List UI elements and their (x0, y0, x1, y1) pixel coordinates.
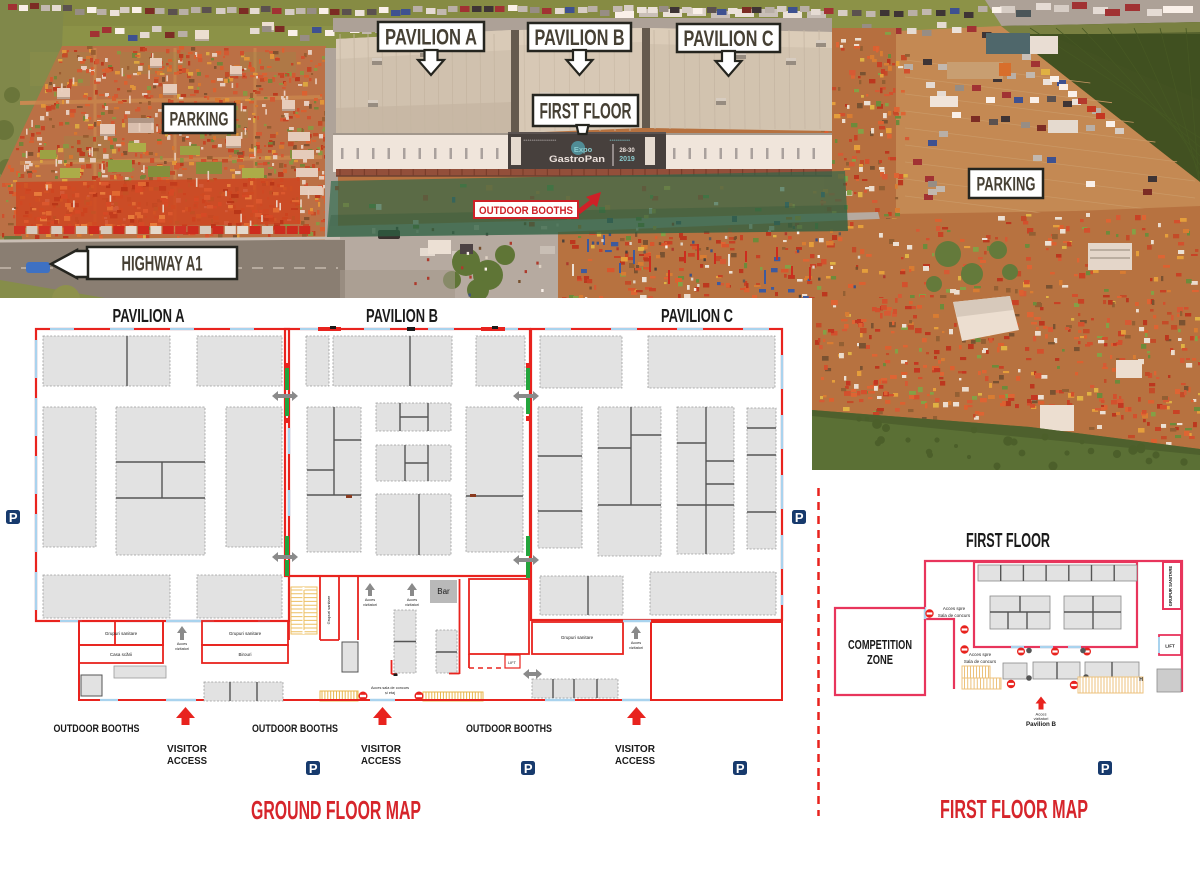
svg-text:LIFT: LIFT (1165, 644, 1175, 649)
svg-text:Pavilion B: Pavilion B (1026, 722, 1057, 728)
svg-text:Casa scării: Casa scării (110, 652, 132, 657)
svg-text:ACCESS: ACCESS (361, 755, 401, 767)
svg-text:P: P (736, 761, 745, 776)
svg-text:Sala de concurs: Sala de concurs (964, 659, 997, 664)
svg-text:Acces: Acces (407, 598, 417, 602)
svg-text:vizitatori: vizitatori (175, 647, 189, 651)
svg-text:Grupuri sanitare: Grupuri sanitare (105, 631, 138, 636)
svg-text:vizitatori: vizitatori (405, 603, 419, 607)
svg-text:PARKING: PARKING (170, 109, 229, 130)
svg-text:GRUPUR SANITARE: GRUPUR SANITARE (1168, 566, 1173, 607)
svg-text:Birouri: Birouri (238, 652, 251, 657)
svg-text:PAVILION A: PAVILION A (385, 24, 477, 49)
svg-text:Acces: Acces (365, 598, 375, 602)
svg-text:Grupuri sanitare: Grupuri sanitare (326, 595, 331, 624)
svg-text:OUTDOOR BOOTHS: OUTDOOR BOOTHS (466, 723, 552, 735)
svg-text:Acces sala de concurs: Acces sala de concurs (371, 686, 409, 690)
svg-text:H: H (1139, 677, 1143, 683)
svg-text:OUTDOOR BOOTHS: OUTDOOR BOOTHS (479, 205, 573, 217)
svg-text:HIGHWAY A1: HIGHWAY A1 (122, 253, 203, 276)
svg-text:OUTDOOR BOOTHS: OUTDOOR BOOTHS (54, 723, 140, 735)
svg-text:P: P (795, 510, 804, 525)
svg-text:vizitatori: vizitatori (363, 603, 377, 607)
svg-text:ACCESS: ACCESS (615, 755, 655, 767)
svg-text:și etaj: și etaj (385, 691, 395, 695)
svg-text:P: P (524, 761, 533, 776)
svg-text:ZONE: ZONE (867, 653, 893, 667)
svg-text:VISITOR: VISITOR (167, 743, 207, 755)
svg-text:vizitatori: vizitatori (629, 646, 643, 650)
svg-text:Acces spre: Acces spre (969, 652, 992, 657)
svg-text:VISITOR: VISITOR (361, 743, 401, 755)
svg-text:PAVILION B: PAVILION B (366, 306, 438, 326)
svg-text:P: P (1101, 761, 1110, 776)
svg-text:Grupuri sanitare: Grupuri sanitare (229, 631, 262, 636)
svg-text:OUTDOOR BOOTHS: OUTDOOR BOOTHS (252, 723, 338, 735)
svg-text:P: P (309, 761, 318, 776)
svg-text:Acces: Acces (177, 642, 187, 646)
svg-text:ACCESS: ACCESS (167, 755, 207, 767)
svg-text:PAVILION C: PAVILION C (684, 26, 774, 51)
svg-text:Sala de concurs: Sala de concurs (938, 613, 971, 618)
svg-text:PAVILION B: PAVILION B (535, 25, 625, 50)
svg-text:P: P (9, 510, 18, 525)
svg-text:Acces spre: Acces spre (943, 606, 966, 611)
svg-text:PAVILION A: PAVILION A (113, 306, 185, 326)
svg-text:FIRST FLOOR: FIRST FLOOR (540, 98, 632, 123)
svg-text:VISITOR: VISITOR (615, 743, 655, 755)
svg-text:vizitatori: vizitatori (1034, 716, 1049, 721)
svg-text:Bar: Bar (437, 587, 450, 596)
svg-text:FIRST FLOOR MAP: FIRST FLOOR MAP (940, 794, 1088, 824)
svg-text:Acces: Acces (631, 641, 641, 645)
svg-text:LIFT: LIFT (508, 661, 516, 665)
svg-text:GROUND FLOOR MAP: GROUND FLOOR MAP (251, 795, 421, 825)
svg-text:PARKING: PARKING (977, 174, 1036, 195)
svg-text:FIRST FLOOR: FIRST FLOOR (966, 530, 1050, 552)
svg-text:Grupuri sanitare: Grupuri sanitare (561, 635, 594, 640)
svg-text:COMPETITION: COMPETITION (848, 638, 912, 652)
svg-text:PAVILION C: PAVILION C (661, 306, 733, 326)
